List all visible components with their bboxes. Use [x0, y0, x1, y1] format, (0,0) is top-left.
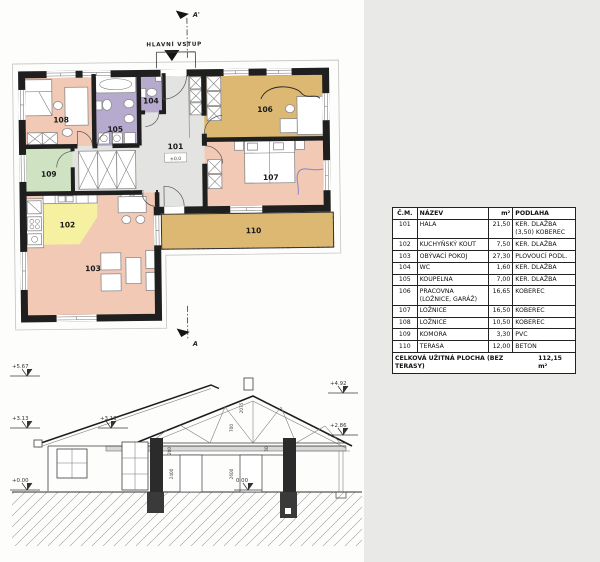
level-text: +3.13 [12, 416, 29, 422]
table-row: 102KUCHYŇSKÝ KOUT7,50KER. DLAŽBA [393, 239, 576, 251]
cell-name: KOMORA [417, 329, 488, 341]
hall-level-note: ±0,0 [170, 156, 181, 162]
room-table-header: Č.M. NÁZEV m² PODLAHA [393, 208, 576, 220]
cell-area: 3,30 [488, 329, 513, 341]
room-label-101: 101 [168, 142, 184, 151]
level-marker-ridge-right: +4.92 [328, 381, 358, 393]
table-row: 108LOŽNICE10,50KOBEREC [393, 317, 576, 329]
cell-area: 16,65 [488, 286, 513, 306]
wardrobe-icon [27, 132, 57, 144]
dim-door-left: 2400 [169, 468, 174, 479]
cell-name: PRACOVNA (LOŽNICE, GARÁŽ) [417, 286, 488, 306]
cell-area: 1,60 [488, 262, 513, 274]
room-label-102: 102 [60, 220, 76, 229]
table-row: 105KOUPELNA7,00KER. DLAŽBA [393, 274, 576, 286]
cell-floor: KER. DLAŽBA [513, 239, 576, 251]
cell-floor: BETON [513, 341, 576, 353]
cell-name: WC [417, 262, 488, 274]
dim-plate: 200 [167, 447, 172, 455]
cell-area: 27,30 [488, 251, 513, 263]
cell-floor: KER. DLAŽBA [513, 262, 576, 274]
dim-ridge-lower: 700 [229, 424, 234, 432]
ground-hatch [12, 492, 362, 546]
room-label-106: 106 [257, 105, 273, 114]
room-table-body: 101HALA21,50KER. DLAŽBA (3,50) KOBEREC10… [393, 219, 576, 352]
cell-no: 108 [393, 317, 418, 329]
cell-area: 16,50 [488, 305, 513, 317]
cell-name: KUCHYŇSKÝ KOUT [417, 239, 488, 251]
cell-area: 21,50 [488, 219, 513, 239]
cell-name: OBÝVACÍ POKOJ [417, 251, 488, 263]
room-label-110: 110 [246, 226, 262, 235]
cell-floor: PVC [513, 329, 576, 341]
room-label-108: 108 [53, 115, 69, 124]
cell-name: LOŽNICE [417, 317, 488, 329]
section-marker-bottom: A [176, 306, 198, 348]
level-marker-eave-right: +2.86 [328, 423, 358, 435]
table-row: 101HALA21,50KER. DLAŽBA (3,50) KOBEREC [393, 219, 576, 239]
cell-no: 107 [393, 305, 418, 317]
table-row: 104WC1,60KER. DLAŽBA [393, 262, 576, 274]
total-area-label: CELKOVÁ UŽITNÁ PLOCHA (BEZ TERASY) [395, 355, 534, 371]
room-label-103: 103 [85, 264, 101, 273]
room-label-105: 105 [107, 125, 123, 134]
section-marker-top: A' [176, 10, 201, 58]
cell-area: 7,50 [488, 239, 513, 251]
table-row: 107LOŽNICE16,50KOBEREC [393, 305, 576, 317]
dim-plate2: 50 [264, 446, 269, 452]
cell-floor: KER. DLAŽBA [513, 274, 576, 286]
header-cislo-mistnosti: Č.M. [393, 208, 418, 220]
scanned-drawing-page: 101 ±0,0 102 103 104 105 106 107 108 109… [0, 0, 600, 562]
header-plocha: m² [488, 208, 513, 220]
cell-name: HALA [417, 219, 488, 239]
header-nazev: NÁZEV [417, 208, 488, 220]
table-row: 103OBÝVACÍ POKOJ27,30PLOVOUCÍ PODL. [393, 251, 576, 263]
cell-name: LOŽNICE [417, 305, 488, 317]
cell-name: TERASA [417, 341, 488, 353]
room-label-109: 109 [41, 170, 57, 179]
room-label-107: 107 [263, 173, 279, 182]
truss-webs [150, 401, 340, 443]
level-marker-floor-left: +0.00 [10, 478, 40, 490]
cell-no: 110 [393, 341, 418, 353]
room-label-104: 104 [143, 96, 159, 105]
header-podlaha: PODLAHA [513, 208, 576, 220]
table-row: 109KOMORA3,30PVC [393, 329, 576, 341]
entrance-annotation: HLAVNÍ VSTUP [146, 40, 202, 69]
section-label-top: A' [192, 11, 200, 19]
cell-no: 101 [393, 219, 418, 239]
level-marker-ridge-left: +5.67 [10, 364, 40, 376]
cell-floor: KOBEREC [513, 305, 576, 317]
cell-no: 103 [393, 251, 418, 263]
cell-no: 104 [393, 262, 418, 274]
side-panel: Č.M. NÁZEV m² PODLAHA 101HALA21,50KER. D… [364, 0, 600, 562]
level-marker-eave-left: +3.13 [10, 416, 40, 428]
cell-no: 109 [393, 329, 418, 341]
room-table-footer: CELKOVÁ UŽITNÁ PLOCHA (BEZ TERASY) 112,1… [393, 352, 576, 374]
table-row: 106PRACOVNA (LOŽNICE, GARÁŽ)16,65KOBEREC [393, 286, 576, 306]
level-text: +5.67 [12, 364, 29, 370]
cell-area: 12,00 [488, 341, 513, 353]
table-footer-row: CELKOVÁ UŽITNÁ PLOCHA (BEZ TERASY) 112,1… [393, 352, 576, 374]
level-text: 0.00 [236, 478, 249, 484]
dim-door-right: 2600 [229, 468, 234, 479]
cell-floor: KOBEREC [513, 286, 576, 306]
cell-floor: PLOVOUCÍ PODL. [513, 251, 576, 263]
cell-no: 105 [393, 274, 418, 286]
ridge-vent [244, 378, 253, 390]
room-table: Č.M. NÁZEV m² PODLAHA 101HALA21,50KER. D… [392, 207, 576, 374]
total-area-value: 112,15 m² [538, 355, 573, 371]
floor-plan: 101 ±0,0 102 103 104 105 106 107 108 109… [0, 0, 380, 352]
cell-floor: KOBEREC [513, 317, 576, 329]
entrance-label: HLAVNÍ VSTUP [146, 40, 202, 49]
cell-area: 10,50 [488, 317, 513, 329]
cell-no: 106 [393, 286, 418, 306]
cell-area: 7,00 [488, 274, 513, 286]
cell-name: KOUPELNA [417, 274, 488, 286]
cell-floor: KER. DLAŽBA (3,50) KOBEREC [513, 219, 576, 239]
cell-no: 102 [393, 239, 418, 251]
level-text: +0.00 [12, 478, 29, 484]
table-row: 110TERASA12,00BETON [393, 341, 576, 353]
dim-ridge-upper: 2075 [239, 402, 244, 413]
section-arrow-icon [176, 10, 189, 19]
section-label-bottom: A [192, 340, 198, 348]
section-elevation: 2075 700 200 50 2400 2600 +5.67 +3.13 +0… [0, 352, 380, 562]
